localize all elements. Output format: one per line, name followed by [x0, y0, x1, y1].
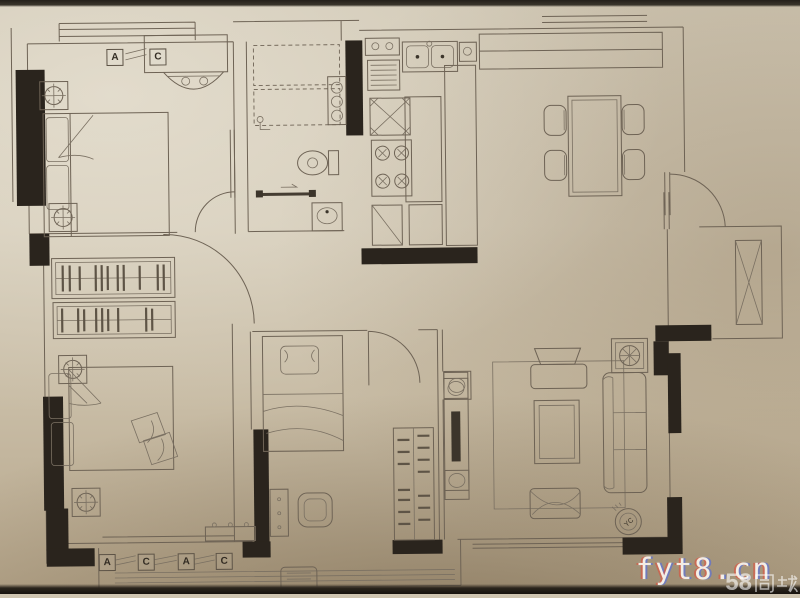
double-sink-icon — [402, 41, 457, 72]
floor-plan-drawing: YC — [0, 0, 800, 598]
toilet-icon — [297, 151, 338, 175]
fan-coil-label: YC — [623, 517, 635, 529]
chair-icon — [622, 104, 644, 134]
ac-label: C — [216, 553, 233, 570]
water-heater-icon — [328, 77, 347, 125]
shower-head-icon — [257, 116, 270, 129]
drain-rack-icon — [367, 60, 399, 90]
kitchen-counter-right — [445, 65, 478, 245]
dining-table-icon — [568, 96, 622, 197]
ac-label: A — [178, 553, 195, 570]
bedroom1-furniture — [39, 35, 229, 237]
logo-tongcheng-glyphs — [754, 572, 798, 594]
bedroom2-furniture — [262, 335, 434, 542]
prep-counter-x-icon — [370, 98, 410, 135]
gas-meter-icon — [365, 38, 399, 55]
shaft-x-symbol — [699, 226, 782, 339]
bed-single-icon — [262, 336, 343, 452]
photo-top-edge — [0, 0, 800, 7]
master-bedroom-furniture — [49, 354, 256, 543]
dining-set — [544, 95, 645, 196]
fan-coil-yc-icon: YC — [612, 502, 641, 534]
ac-label: C — [138, 554, 155, 571]
ottoman-icon — [530, 488, 580, 519]
desk-chair-icon — [298, 493, 332, 527]
chair-icon — [544, 105, 566, 135]
duct-dashes — [110, 48, 214, 565]
logo-58-number: 58 — [725, 572, 752, 594]
floor-plan-tilt-layer: YC A C A C A C — [0, 0, 800, 598]
bed-double-icon — [43, 112, 169, 236]
bathroom-fixtures — [253, 45, 347, 232]
living-room-furniture: YC — [443, 338, 649, 536]
washbasin-icon — [312, 203, 342, 231]
armchair-icon — [531, 348, 587, 389]
coffee-table-icon — [534, 400, 580, 463]
nightstand-target-icon — [59, 355, 87, 383]
tv-cabinet-icon — [444, 372, 469, 499]
wardrobe-hanging-clothes — [52, 257, 176, 338]
ac-label: A — [99, 554, 116, 571]
desk-icon — [270, 489, 288, 536]
kitchen-fixtures — [365, 37, 478, 246]
tv-icon — [451, 411, 461, 461]
small-sink-icon — [459, 42, 476, 61]
shower-sliding-door-icon — [256, 184, 316, 198]
nightstand-target-icon — [72, 488, 100, 516]
nightstand-target-icon — [49, 203, 77, 231]
ac-label: A — [106, 49, 123, 66]
chair-icon — [622, 149, 644, 179]
ac-label: C — [149, 48, 166, 65]
bed-master-icon — [49, 366, 178, 470]
side-table-target-icon — [611, 338, 647, 372]
watermark-58tongcheng-logo: 58 — [725, 572, 798, 594]
bench-icon — [205, 523, 255, 542]
chair-icon — [544, 150, 566, 180]
floor-plan-photo: { "meta": { "paper_color": "#cfc5b1", "i… — [0, 0, 800, 594]
fridge-icon — [372, 205, 442, 246]
wardrobe-side-icon — [393, 428, 434, 540]
